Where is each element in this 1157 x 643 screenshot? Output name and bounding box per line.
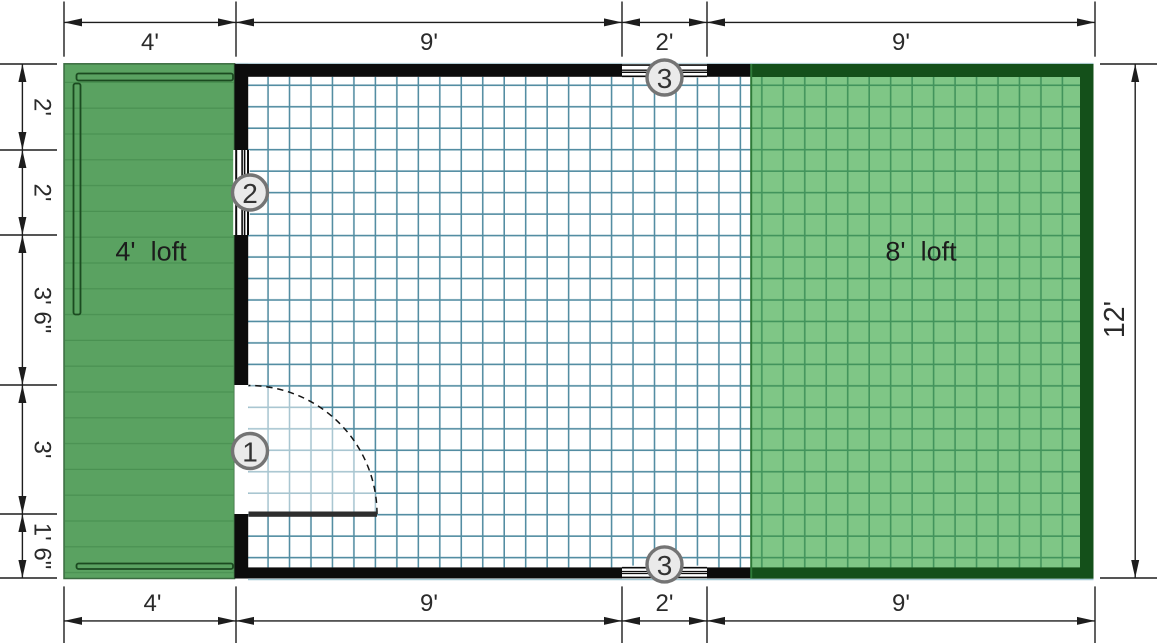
svg-text:2': 2' [29, 98, 56, 116]
svg-text:3': 3' [29, 441, 56, 459]
svg-text:3: 3 [657, 63, 673, 94]
svg-text:3' 6": 3' 6" [29, 287, 56, 333]
svg-text:4': 4' [141, 29, 159, 56]
svg-text:12': 12' [1099, 301, 1131, 338]
svg-text:2: 2 [242, 178, 258, 209]
svg-text:4': 4' [144, 590, 162, 617]
svg-text:9': 9' [420, 29, 438, 56]
svg-text:2': 2' [29, 184, 56, 202]
svg-text:1' 6": 1' 6" [29, 523, 56, 569]
svg-text:9': 9' [892, 29, 910, 56]
svg-text:8' loft: 8' loft [885, 237, 957, 267]
svg-text:2': 2' [656, 29, 674, 56]
svg-text:9': 9' [420, 590, 438, 617]
svg-text:4' loft: 4' loft [115, 237, 187, 267]
svg-text:2': 2' [656, 590, 674, 617]
svg-text:1: 1 [242, 437, 258, 468]
svg-text:9': 9' [892, 590, 910, 617]
svg-text:3: 3 [657, 550, 673, 581]
